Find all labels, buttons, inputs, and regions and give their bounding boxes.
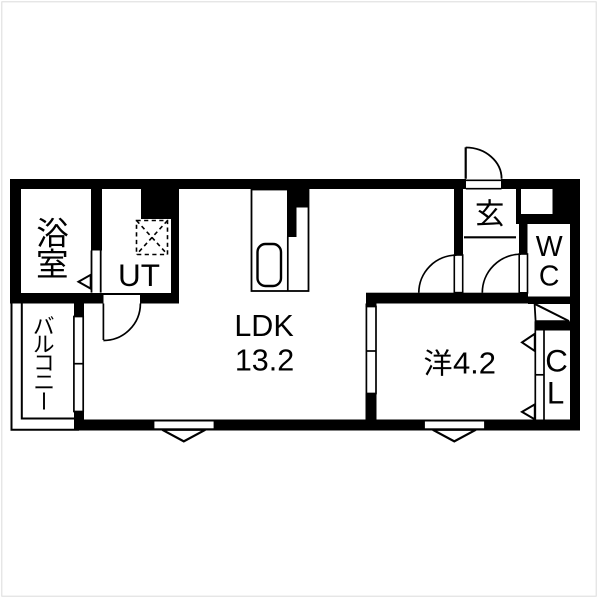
svg-text:LDK: LDK bbox=[234, 309, 293, 343]
svg-text:W: W bbox=[536, 231, 563, 263]
svg-text:UT: UT bbox=[118, 257, 160, 293]
svg-text:C: C bbox=[539, 260, 560, 292]
svg-text:L: L bbox=[547, 376, 564, 411]
svg-text:C: C bbox=[545, 344, 568, 379]
svg-text:13.2: 13.2 bbox=[235, 343, 294, 377]
svg-text:4.2: 4.2 bbox=[453, 346, 496, 381]
